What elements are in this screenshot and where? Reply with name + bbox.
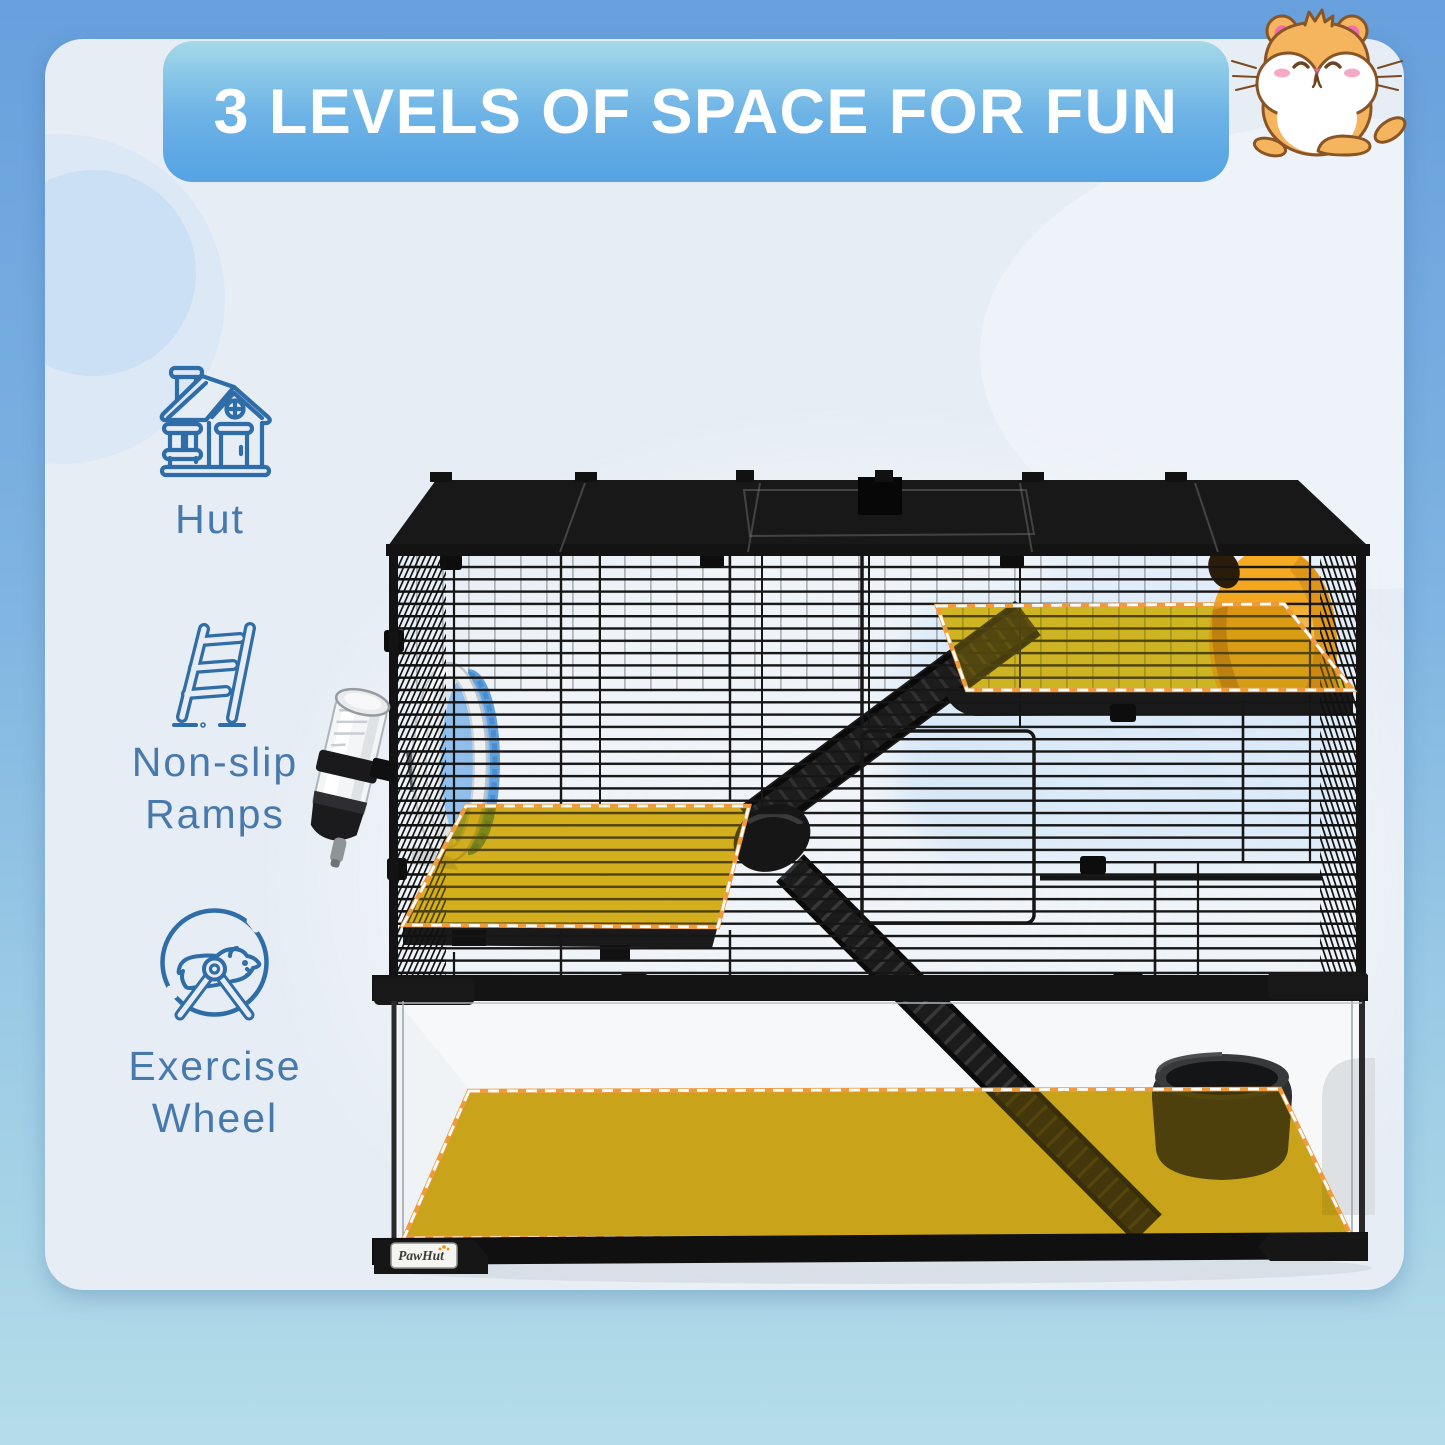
svg-text:PawHut: PawHut — [398, 1248, 445, 1263]
